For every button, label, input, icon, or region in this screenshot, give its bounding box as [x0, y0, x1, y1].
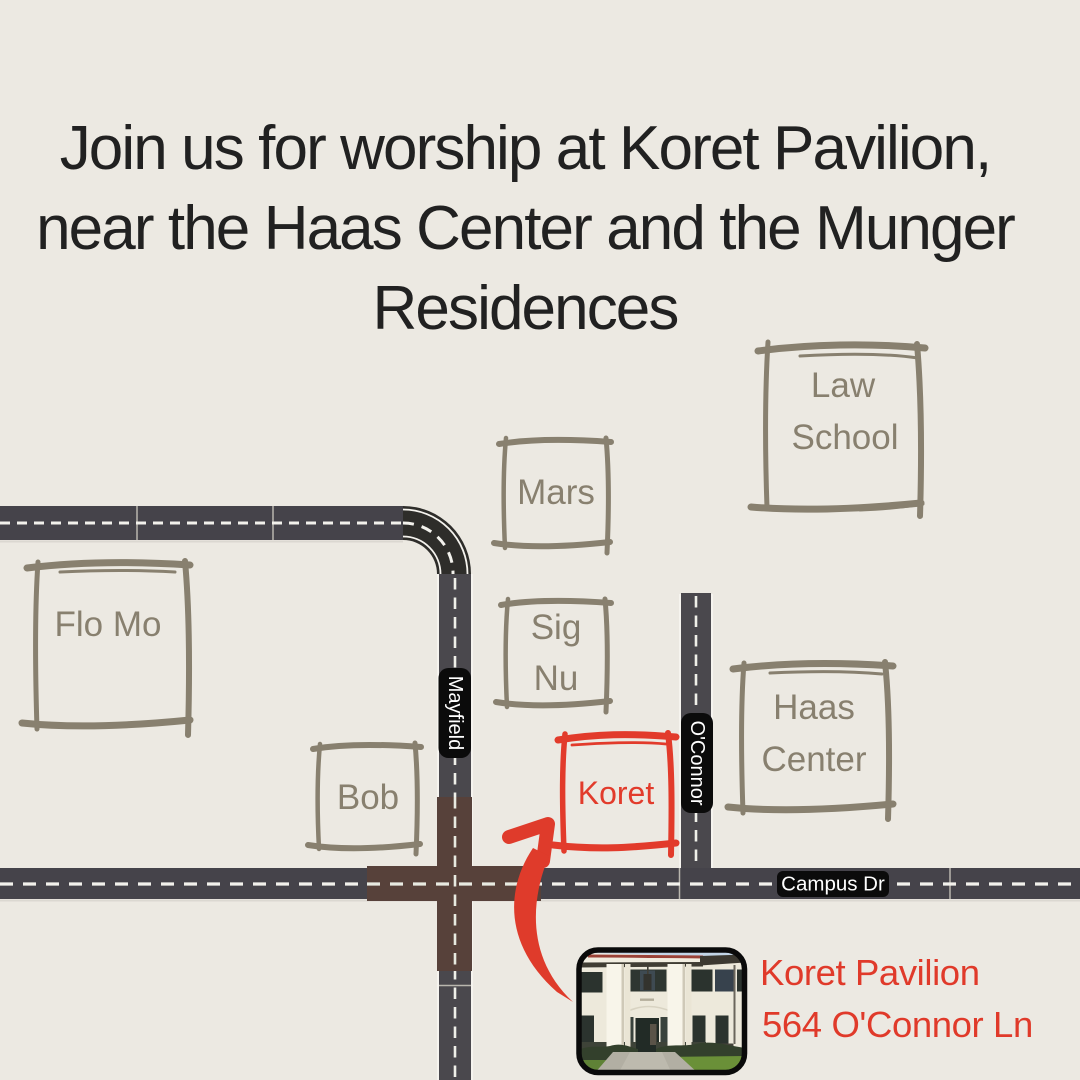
- svg-text:Koret Pavilion: Koret Pavilion: [760, 952, 980, 993]
- svg-text:Residences: Residences: [373, 274, 678, 343]
- svg-text:Center: Center: [761, 740, 866, 779]
- svg-text:Bob: Bob: [337, 778, 399, 817]
- svg-text:Campus Dr: Campus Dr: [781, 873, 885, 896]
- svg-text:Haas: Haas: [773, 688, 855, 727]
- svg-text:Flo Mo: Flo Mo: [55, 605, 162, 644]
- svg-text:Nu: Nu: [534, 659, 579, 698]
- svg-text:Sig: Sig: [531, 608, 582, 647]
- svg-text:Koret: Koret: [578, 775, 655, 811]
- svg-text:Join us for worship at Koret P: Join us for worship at Koret Pavilion,: [60, 114, 991, 183]
- svg-text:O'Connor: O'Connor: [686, 721, 708, 806]
- svg-text:Mayfield: Mayfield: [444, 676, 466, 750]
- svg-text:Mars: Mars: [517, 473, 595, 512]
- svg-text:564 O'Connor Ln: 564 O'Connor Ln: [762, 1004, 1033, 1045]
- svg-text:Law: Law: [811, 366, 876, 405]
- svg-text:near the Haas Center and the M: near the Haas Center and the Munger: [36, 194, 1015, 263]
- svg-text:School: School: [791, 418, 898, 457]
